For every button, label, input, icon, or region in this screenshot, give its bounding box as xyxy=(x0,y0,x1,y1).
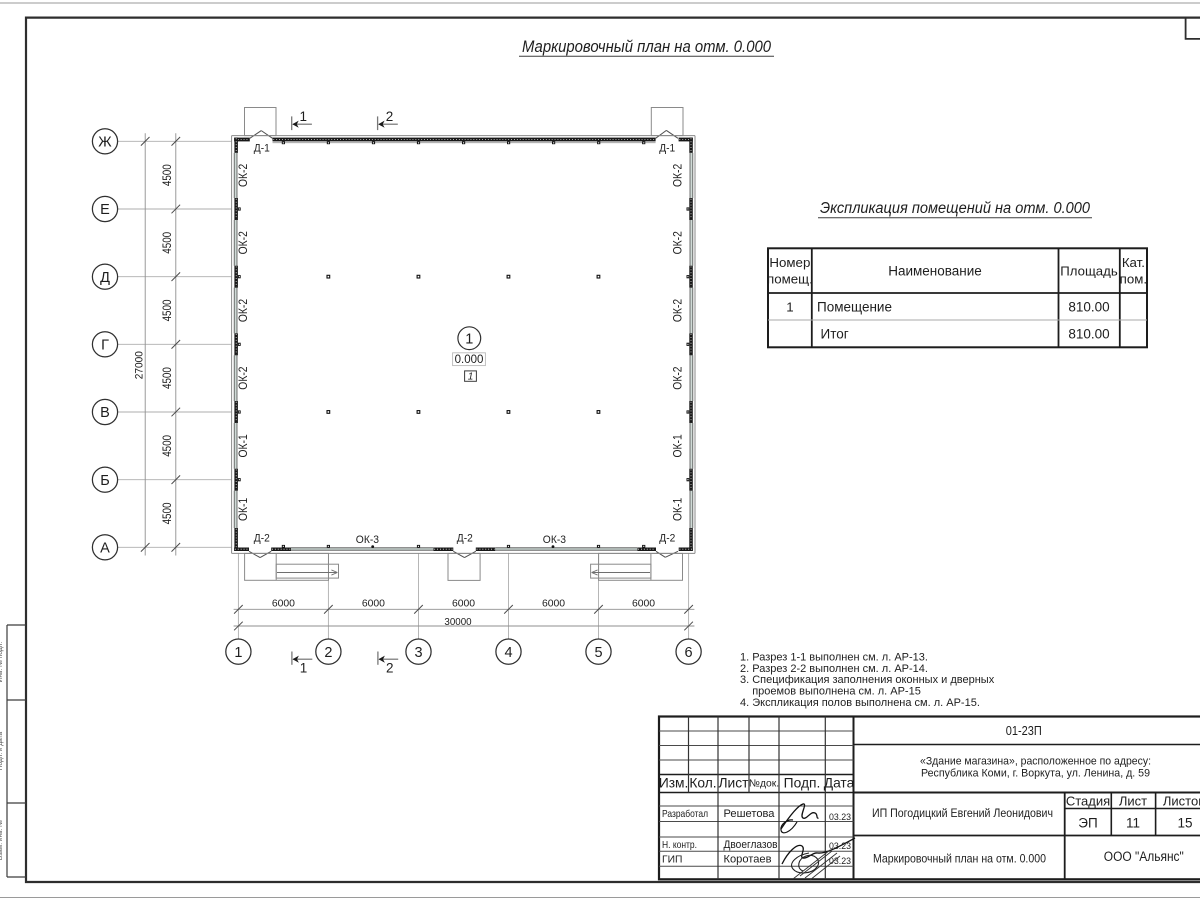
svg-text:Экспликация помещений на отм.: Экспликация помещений на отм. 0.000 xyxy=(820,200,1090,217)
svg-text:Инв. № подл.: Инв. № подл. xyxy=(0,642,4,683)
svg-text:Разработал: Разработал xyxy=(662,808,708,820)
svg-text:0.000: 0.000 xyxy=(455,354,484,366)
svg-text:4. Экспликация полов выполнена: 4. Экспликация полов выполнена см. л. АР… xyxy=(740,697,980,709)
svg-text:Д-2: Д-2 xyxy=(254,533,270,545)
svg-text:Дата: Дата xyxy=(824,776,855,791)
svg-text:ОК-1: ОК-1 xyxy=(670,498,684,521)
svg-text:1: 1 xyxy=(234,645,242,661)
svg-text:ОК-2: ОК-2 xyxy=(236,366,250,389)
svg-text:Листов: Листов xyxy=(1163,794,1200,809)
svg-text:ОК-2: ОК-2 xyxy=(670,299,684,322)
svg-text:ЭП: ЭП xyxy=(1078,816,1097,831)
svg-text:Лист: Лист xyxy=(1119,794,1147,809)
svg-text:15: 15 xyxy=(1177,816,1192,831)
svg-text:Кол.: Кол. xyxy=(689,776,716,791)
svg-text:Подп. и дата: Подп. и дата xyxy=(0,731,4,770)
svg-text:6000: 6000 xyxy=(362,598,385,609)
svg-text:Республика Коми, г. Воркута, у: Республика Коми, г. Воркута, ул. Ленина,… xyxy=(921,768,1150,780)
svg-text:Коротаев: Коротаев xyxy=(724,853,772,865)
svg-text:Д-2: Д-2 xyxy=(659,533,675,545)
svg-text:Подп.: Подп. xyxy=(784,776,821,791)
svg-text:4500: 4500 xyxy=(162,503,174,525)
svg-text:ООО "Альянс": ООО "Альянс" xyxy=(1104,849,1184,864)
svg-text:пом.: пом. xyxy=(1120,271,1147,286)
svg-text:4500: 4500 xyxy=(162,435,174,457)
svg-text:1: 1 xyxy=(468,371,474,382)
svg-text:Площадь: Площадь xyxy=(1060,264,1118,279)
svg-text:Д: Д xyxy=(100,270,110,286)
svg-text:4500: 4500 xyxy=(162,232,174,254)
svg-text:4500: 4500 xyxy=(162,164,174,186)
svg-text:ОК-2: ОК-2 xyxy=(236,231,250,254)
svg-text:2: 2 xyxy=(324,645,332,661)
svg-text:№док.: №док. xyxy=(749,779,779,790)
svg-text:810.00: 810.00 xyxy=(1068,326,1109,341)
svg-text:1. Разрез 1-1 выполнен см. л.: 1. Разрез 1-1 выполнен см. л. АР-13. xyxy=(740,652,928,664)
svg-text:11: 11 xyxy=(1126,816,1140,831)
svg-text:01-23П: 01-23П xyxy=(1006,723,1042,738)
svg-text:4: 4 xyxy=(504,645,512,661)
svg-text:2: 2 xyxy=(386,660,394,675)
svg-text:6000: 6000 xyxy=(452,598,475,609)
svg-text:Г: Г xyxy=(101,338,109,354)
svg-text:1: 1 xyxy=(300,660,308,675)
svg-text:ОК-2: ОК-2 xyxy=(670,164,684,187)
svg-text:6000: 6000 xyxy=(542,598,565,609)
svg-text:помещ.: помещ. xyxy=(767,271,813,286)
svg-text:Помещение: Помещение xyxy=(817,299,892,314)
svg-text:В: В xyxy=(100,405,110,421)
svg-text:810.00: 810.00 xyxy=(1068,299,1109,314)
svg-text:ОК-3: ОК-3 xyxy=(543,534,566,546)
svg-text:6: 6 xyxy=(685,645,693,661)
svg-text:Изм.: Изм. xyxy=(659,776,689,791)
svg-text:ОК-3: ОК-3 xyxy=(356,534,379,546)
svg-text:4500: 4500 xyxy=(162,300,174,322)
svg-text:Д-1: Д-1 xyxy=(254,143,270,155)
svg-text:проемов выполнена см. л. АР-15: проемов выполнена см. л. АР-15 xyxy=(740,686,921,698)
svg-text:2: 2 xyxy=(386,109,394,124)
svg-text:1: 1 xyxy=(786,299,793,314)
svg-text:Лист: Лист xyxy=(719,776,750,791)
svg-text:27000: 27000 xyxy=(134,351,146,379)
svg-text:5: 5 xyxy=(594,645,602,661)
svg-text:Д-1: Д-1 xyxy=(659,143,675,155)
svg-text:Кат.: Кат. xyxy=(1122,255,1145,270)
svg-text:Маркировочный план на отм. 0.0: Маркировочный план на отм. 0.000 xyxy=(873,852,1046,866)
svg-text:6000: 6000 xyxy=(272,598,295,609)
svg-text:Н. контр.: Н. контр. xyxy=(662,840,697,851)
svg-text:ОК-2: ОК-2 xyxy=(236,299,250,322)
svg-text:Б: Б xyxy=(100,473,110,489)
svg-text:А: А xyxy=(100,541,110,557)
svg-text:ОК-1: ОК-1 xyxy=(670,434,684,457)
svg-text:Ж: Ж xyxy=(98,135,112,151)
svg-text:Двоеглазов: Двоеглазов xyxy=(724,839,778,851)
svg-text:Стадия: Стадия xyxy=(1066,794,1110,809)
svg-text:Номер: Номер xyxy=(769,255,810,270)
svg-text:4500: 4500 xyxy=(162,367,174,389)
svg-text:3: 3 xyxy=(414,645,422,661)
svg-text:Маркировочный план на отм. 0.0: Маркировочный план на отм. 0.000 xyxy=(522,38,771,56)
svg-text:ОК-1: ОК-1 xyxy=(236,498,250,521)
svg-text:ИП Погодицкий Евгений Леонидов: ИП Погодицкий Евгений Леонидович xyxy=(872,806,1053,820)
svg-text:Итог: Итог xyxy=(821,326,849,341)
svg-text:Решетова: Решетова xyxy=(724,808,775,820)
svg-text:Д-2: Д-2 xyxy=(457,533,473,545)
svg-text:3. Спецификация заполнения око: 3. Спецификация заполнения оконных и две… xyxy=(740,674,995,686)
svg-text:ГИП: ГИП xyxy=(662,854,682,865)
svg-text:Наименование: Наименование xyxy=(888,264,982,279)
svg-text:«Здание магазина», расположенн: «Здание магазина», расположенное по адре… xyxy=(920,756,1151,768)
svg-text:1: 1 xyxy=(465,331,473,347)
svg-text:03.23: 03.23 xyxy=(829,812,851,822)
svg-text:ОК-2: ОК-2 xyxy=(670,366,684,389)
svg-text:03.23: 03.23 xyxy=(829,856,851,866)
svg-text:30000: 30000 xyxy=(444,617,471,628)
svg-text:1: 1 xyxy=(300,109,308,124)
svg-text:ОК-1: ОК-1 xyxy=(236,434,250,457)
svg-text:Е: Е xyxy=(100,202,110,218)
svg-text:ОК-2: ОК-2 xyxy=(670,231,684,254)
svg-text:2. Разрез 2-2 выполнен см. л.: 2. Разрез 2-2 выполнен см. л. АР-14. xyxy=(740,663,928,675)
svg-text:Взам. инв. №: Взам. инв. № xyxy=(0,820,4,860)
svg-text:6000: 6000 xyxy=(632,598,655,609)
svg-text:ОК-2: ОК-2 xyxy=(236,164,250,187)
